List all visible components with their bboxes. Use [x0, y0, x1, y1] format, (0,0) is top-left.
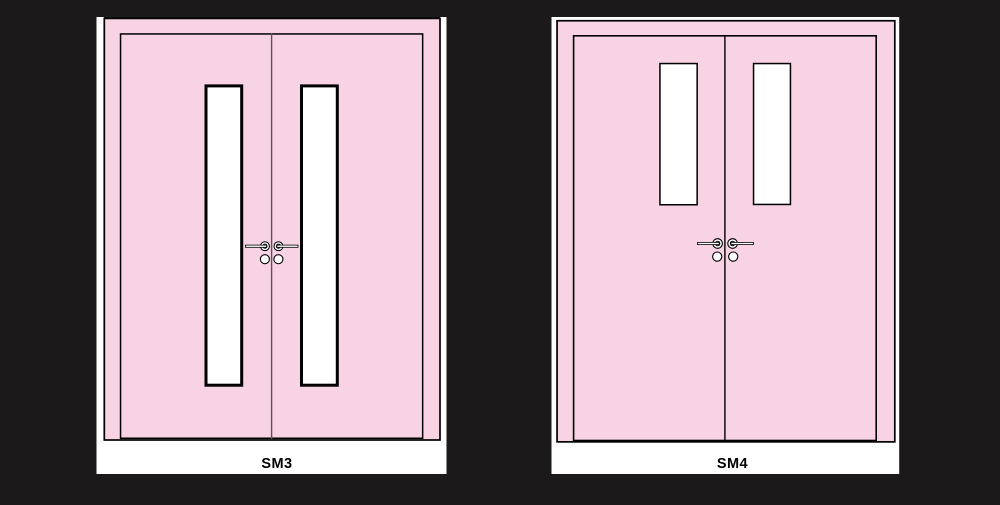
- svg-text:SM3: SM3: [261, 456, 292, 472]
- svg-text:SM4: SM4: [717, 456, 748, 472]
